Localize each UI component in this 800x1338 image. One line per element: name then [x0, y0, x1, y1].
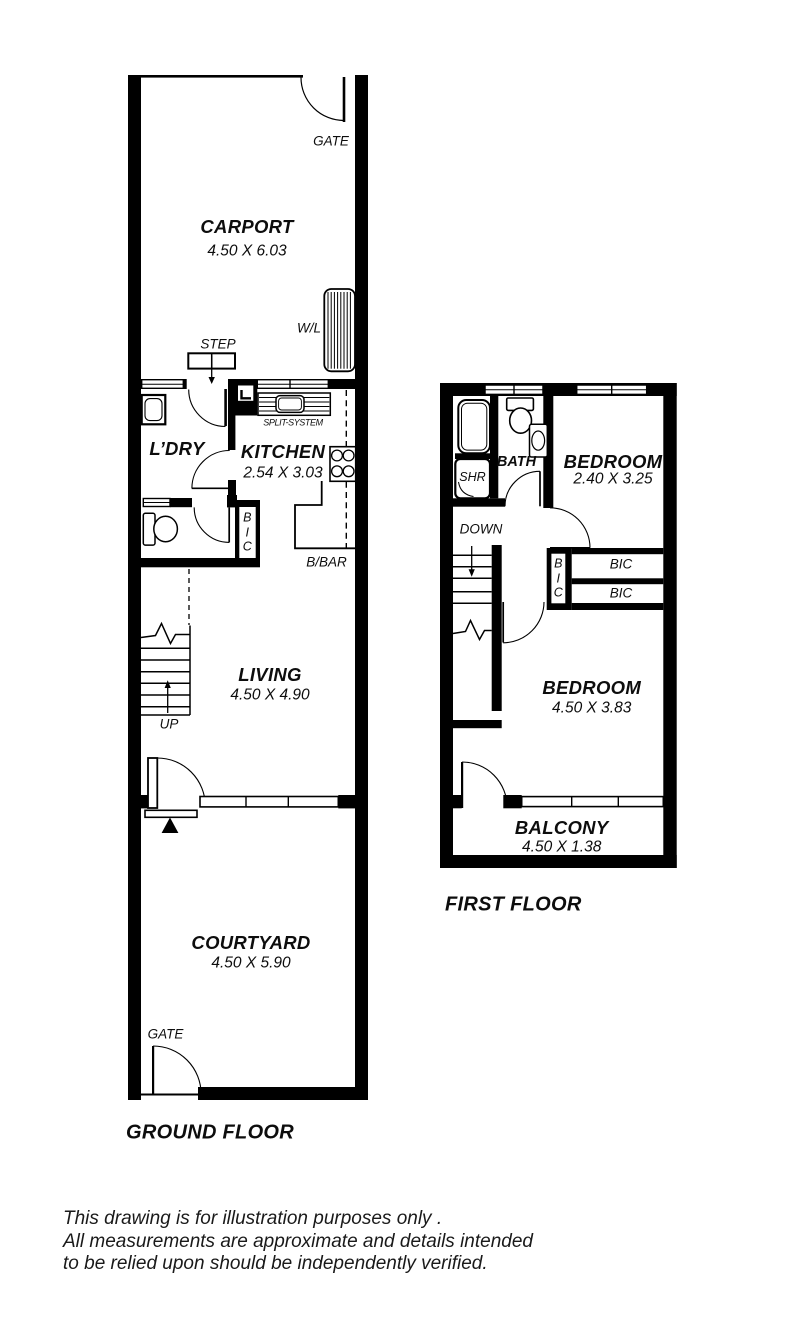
bedroom1-label: BEDROOM: [564, 453, 663, 472]
kitchen-dims: 2.54 X 3.03: [243, 465, 322, 481]
stairs-down: [453, 545, 502, 728]
kitchen-partition-wall: [228, 389, 235, 450]
balcony-label: BALCONY: [515, 819, 609, 838]
down-label: DOWN: [460, 522, 503, 536]
bic-ground-label: B I C: [243, 510, 252, 554]
disclaimer-text: This drawing is for illustration purpose…: [63, 1208, 533, 1276]
courtyard-gate: [152, 1046, 201, 1094]
disclaimer-line-2: All measurements are approximate and det…: [63, 1231, 533, 1254]
balcony-dims: 4.50 X 1.38: [522, 839, 601, 855]
tub-side-wall: [490, 396, 498, 498]
split-system-label: SPLIT-SYSTEM: [263, 419, 322, 428]
courtyard-label: COURTYARD: [191, 934, 310, 953]
living-dims: 4.50 X 4.90: [230, 687, 309, 703]
gate-top-label: GATE: [313, 134, 349, 148]
bedroom1-door: [550, 508, 590, 548]
gate-bottom-label: GATE: [148, 1027, 184, 1041]
step-label: STEP: [200, 337, 235, 351]
kitchen-label: KITCHEN: [241, 443, 325, 462]
bath-label: BATH: [497, 454, 536, 469]
bath-door: [505, 471, 540, 506]
bath-bottom-wall: [453, 498, 505, 506]
shr-label: SHR: [459, 471, 485, 484]
disclaimer-line-1: This drawing is for illustration purpose…: [63, 1208, 533, 1231]
laundry-label: L’DRY: [149, 440, 204, 459]
wl-unit: [324, 289, 355, 371]
bedroom1-dims: 2.40 X 3.25: [573, 471, 652, 487]
bic-closets-first: [547, 548, 664, 610]
bbar-label: B/BAR: [306, 555, 347, 569]
sink-counter: [258, 393, 330, 415]
bic2-label: BIC: [610, 586, 633, 600]
bic-vertical-label: B I C: [554, 556, 563, 600]
disclaimer-line-3: to be relied upon should be independentl…: [63, 1253, 533, 1276]
entry-marker: [145, 810, 197, 833]
wc-room: [143, 495, 237, 545]
stove: [330, 447, 356, 482]
stairs-up: [141, 624, 190, 716]
wc-bottom-wall: [141, 558, 260, 567]
bic1-label: BIC: [610, 557, 633, 571]
bedroom2-dims: 4.50 X 3.83: [552, 700, 631, 716]
laundry-door: [189, 389, 227, 427]
laundry-tub: [142, 395, 166, 424]
bedroom2-door: [503, 602, 544, 643]
up-label: UP: [160, 717, 179, 731]
front-door: [148, 758, 205, 808]
first-floor-title: FIRST FLOOR: [445, 894, 582, 917]
bedroom2-label: BEDROOM: [542, 679, 641, 698]
first-floor-plan: BATH SHR BEDROOM 2.40 X 3.25 DOWN B I C …: [440, 383, 680, 868]
basin: [530, 424, 548, 457]
carport-dims: 4.50 X 6.03: [207, 243, 286, 259]
courtyard-dims: 4.50 X 5.90: [211, 955, 290, 971]
toilet-bowl: [154, 516, 178, 541]
ground-floor-plan: GATE CARPORT 4.50 X 6.03 W/L STEP SPLIT-…: [128, 74, 368, 1100]
carport-label: CARPORT: [200, 218, 293, 237]
living-wall-band: [141, 795, 355, 808]
bathtub: [458, 400, 490, 453]
living-label: LIVING: [238, 666, 301, 685]
balcony-wall-band: [453, 795, 663, 808]
top-gate: [301, 77, 345, 122]
floorplan-sheet: GATE CARPORT 4.50 X 6.03 W/L STEP SPLIT-…: [0, 0, 800, 1338]
ground-floor-title: GROUND FLOOR: [126, 1122, 294, 1145]
balcony-door: [461, 762, 507, 808]
step-glyph: [188, 353, 235, 384]
wl-label: W/L: [297, 321, 321, 335]
